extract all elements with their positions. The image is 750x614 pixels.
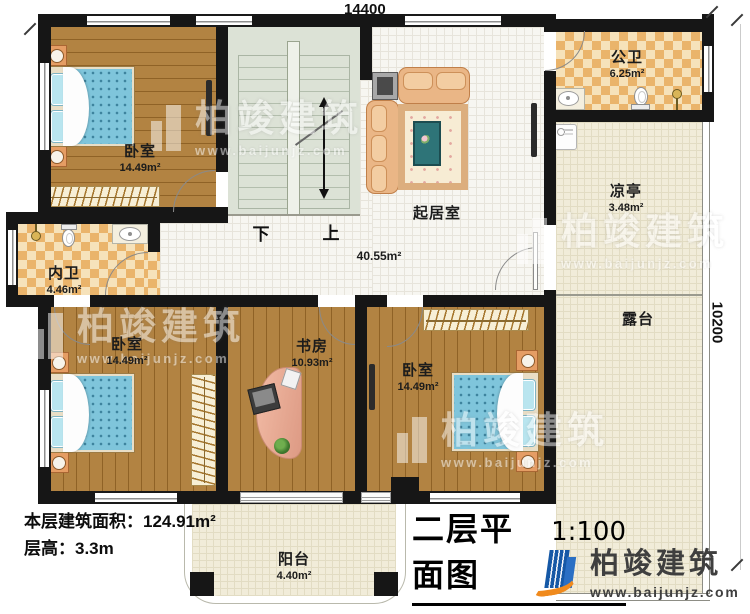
stair-direction-line (323, 107, 325, 189)
window (702, 46, 714, 92)
wall (544, 14, 556, 31)
wall-pier (391, 477, 419, 504)
dimension-tick (24, 23, 37, 36)
room-label-public-bath: 公卫 6.25m² (610, 46, 645, 80)
logo-website: www.baijunjz.com (590, 584, 740, 600)
shower-head (31, 231, 41, 241)
dimension-line-right (740, 24, 741, 570)
wall-pier (374, 572, 398, 596)
sofa (398, 67, 470, 104)
terrace-parapet (702, 122, 710, 600)
room-area-living: 40.55m² (357, 248, 402, 263)
wall (360, 14, 372, 80)
wall (544, 71, 556, 225)
window (405, 14, 501, 27)
arrow-up-icon (319, 97, 329, 107)
tv (206, 80, 212, 136)
bed (451, 372, 539, 452)
window (196, 14, 252, 27)
sofa (366, 100, 399, 194)
company-logo: 柏竣建筑 www.baijunjz.com (534, 549, 740, 600)
pavilion-terrace-divider (556, 294, 702, 296)
wall (355, 295, 367, 504)
shower-stem (35, 223, 37, 232)
room-label-study: 书房 10.93m² (292, 335, 333, 369)
window (430, 491, 520, 504)
stair-core (287, 41, 300, 215)
door-leaf (533, 232, 538, 290)
wall (423, 295, 556, 307)
plant (274, 438, 290, 454)
wall-pier (190, 572, 214, 596)
coffee-table (413, 121, 441, 166)
wall (544, 290, 556, 504)
room-label-bedroom-bottom-left: 卧室 14.49m² (107, 333, 148, 367)
room-label-bedroom-top-left: 卧室 14.49m² (120, 140, 161, 174)
sliding-door (240, 492, 343, 503)
window (95, 491, 177, 504)
room-label-terrace: 露台 (622, 308, 654, 329)
wardrobe (191, 374, 216, 486)
arrow-down-icon (319, 189, 329, 199)
nightstand (516, 350, 538, 371)
stair-edge-line (228, 214, 360, 216)
sink (119, 227, 141, 241)
floor-inner-bath-doorway (148, 252, 160, 295)
floor-height-text: 层高：3.3m (24, 534, 114, 559)
floor-area-text: 本层建筑面积：124.91m² (24, 507, 216, 532)
stair-down-label: 下 (253, 220, 270, 245)
room-label-pavilion: 凉亭 3.48m² (609, 180, 644, 214)
window (38, 63, 51, 150)
plan-title: 二层平面图 (412, 504, 538, 596)
bed (47, 373, 135, 453)
nightstand (516, 451, 538, 472)
wardrobe (423, 309, 529, 331)
tv (369, 364, 375, 410)
sink (558, 91, 579, 106)
wardrobe (48, 186, 160, 207)
side-table (372, 72, 398, 100)
wall (216, 14, 228, 172)
logo-building-icon (534, 549, 580, 599)
window (6, 230, 18, 285)
dimension-width: 14400 (344, 1, 386, 18)
wall (216, 295, 228, 504)
window (38, 390, 51, 467)
dimension-tick (731, 14, 744, 27)
plan-scale: 1:100 (551, 517, 626, 547)
wall (90, 295, 318, 307)
wall (544, 110, 714, 122)
room-label-inner-bath: 内卫 4.46m² (47, 262, 82, 296)
room-label-balcony: 阳台 4.40m² (277, 548, 312, 582)
stair-up-label: 上 (323, 219, 340, 244)
logo-company-name: 柏竣建筑 (590, 549, 740, 581)
tv (531, 103, 537, 157)
washing-machine (553, 124, 577, 150)
floor-stairwell (228, 27, 360, 215)
room-label-living: 起居室 (413, 202, 461, 223)
dimension-height: 10200 (708, 302, 725, 344)
floor-plan: 14400 10200 (0, 0, 750, 614)
window (87, 14, 170, 27)
wall (6, 295, 54, 307)
room-label-bedroom-bottom-right: 卧室 14.49m² (398, 359, 439, 393)
toilet (62, 229, 75, 247)
sliding-door (361, 492, 391, 503)
bed (47, 66, 135, 147)
